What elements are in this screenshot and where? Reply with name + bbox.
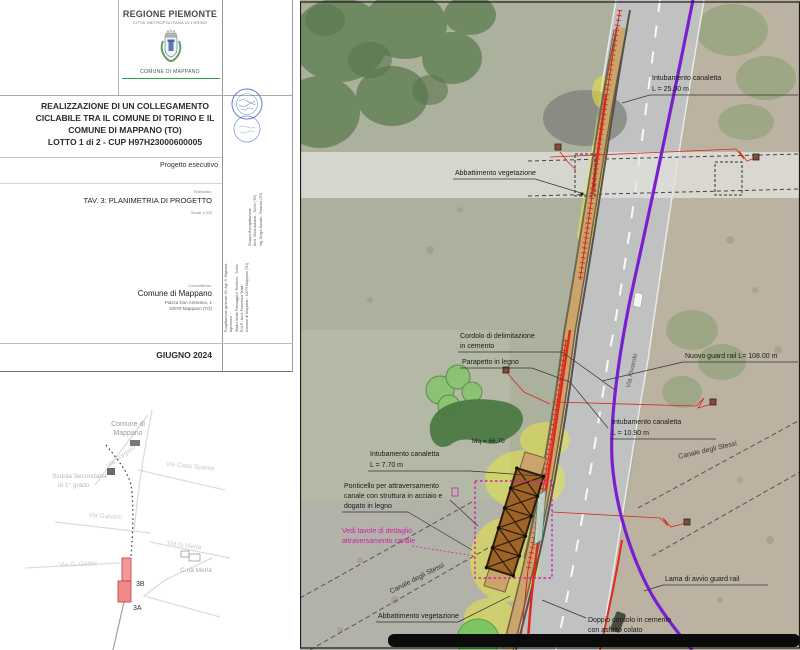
label-intubamento-25-2: L = 25.00 m: [652, 86, 689, 93]
label-intubamento-1090-2: L = 10.90 m: [612, 430, 649, 437]
minimap-label-3a: 3A: [133, 605, 142, 612]
minimap-label-via-la-merla: Via la Merla: [167, 540, 202, 552]
bottom-scrollbar[interactable]: [388, 634, 800, 647]
frame-line: [222, 0, 223, 372]
frame-line: [292, 0, 293, 372]
region-subtitle: CITTA' METROPOLITANA DI TORINO: [112, 20, 228, 25]
green-divider: [122, 78, 220, 79]
frame-line: [0, 183, 222, 184]
region-title: REGIONE PIEMONTE: [118, 9, 222, 19]
minimap-label-comune-1: Comune di: [111, 421, 145, 428]
project-title-line3: COMUNE DI MAPPANO (TO): [28, 125, 222, 135]
overpass-band: [300, 152, 800, 198]
label-lama: Lama di avvio guard rail: [665, 576, 740, 583]
label-intubamento-1090-1: Intubamento canaletta: [612, 419, 681, 426]
location-minimap: Comune di Mappano Scuola Secondaria di 1…: [0, 400, 240, 650]
project-title-line1: REALIZZAZIONE DI UN COLLEGAMENTO: [28, 101, 222, 111]
elaborato-label: Elaborato:: [80, 189, 212, 194]
label-abbattimento-top: Abbattimento vegetazione: [455, 170, 536, 177]
label-doppio-1: Doppio cordolo in cemento: [588, 617, 671, 624]
minimap-label-via-galvani: Via Galvani: [88, 512, 122, 521]
label-ponticello-1: Ponticello per attraversamento: [344, 483, 439, 490]
label-parapetto: Parapetto in legno: [462, 359, 519, 366]
client-address-2: 10079 Mappano (TO): [60, 306, 212, 311]
minimap-label-via-borgaro: Via Borgaro: [105, 444, 137, 470]
label-cordolo-1: Cordolo di delimitazione: [460, 333, 535, 340]
minimap-label-cna-merla: C.na Merla: [180, 567, 212, 574]
label-intubamento-770-1: Intubamento canaletta: [370, 451, 439, 458]
client-address-1: Piazza Don Amerano, 1: [60, 300, 212, 305]
label-abbattimento-bottom: Abbattimento vegetazione: [378, 613, 459, 620]
date-label: GIUGNO 2024: [60, 350, 212, 360]
client-name: Comune di Mappano: [60, 289, 212, 298]
scale-label: Scala 1:200: [80, 210, 212, 215]
minimap-intervention-segments: [118, 558, 131, 602]
stamp-icon: [226, 86, 268, 144]
label-doppio-2: con asfalto colato: [588, 627, 643, 634]
drawing-sheet: { "header": { "region": "REGIONE PIEMONT…: [0, 0, 800, 650]
label-vedi-1: Vedi tavole di dettaglio: [342, 528, 412, 535]
project-title-line4: LOTTO 1 di 2 - CUP H97H23000600005: [28, 137, 222, 147]
minimap-label-scuola-1: Scuola Secondaria: [52, 473, 107, 480]
coat-of-arms-icon: [157, 27, 185, 69]
elaborato-value: TAV. 3: PLANIMETRIA DI PROGETTO: [20, 196, 212, 205]
label-intubamento-25-1: Intubamento canaletta: [652, 75, 721, 82]
leader-dot: [580, 192, 583, 195]
site-plan: Intubamento canaletta L = 25.00 m Abbatt…: [300, 0, 800, 650]
general-designer-block: Progettazione generale: Dr. Agr. S. Mign…: [224, 260, 250, 332]
minimap-label-via-case-sparse: Via Case Sparse: [166, 460, 216, 472]
frame-line: [0, 157, 222, 158]
minimap-labels: Comune di Mappano Scuola Secondaria di 1…: [52, 421, 215, 612]
frame-line: [0, 371, 293, 372]
label-mq: Mq = 66,70: [472, 438, 505, 445]
label-guardrail: Nuovo guard rail L= 108.00 m: [685, 353, 778, 360]
client-label: Committente:: [60, 283, 212, 288]
project-title-line2: CICLABILE TRA IL COMUNE DI TORINO E IL: [28, 113, 222, 123]
minimap-label-via-galilei: Via G. Galilei: [59, 560, 97, 568]
frame-line: [0, 343, 293, 344]
design-team-block: Gruppo di progettazione: Arch. Silvia Ad…: [248, 188, 264, 246]
comune-title: COMUNE DI MAPPANO: [118, 69, 222, 75]
label-intubamento-770-2: L = 7.70 m: [370, 462, 403, 469]
minimap-label-comune-2: Mappano: [113, 430, 142, 437]
minimap-label-scuola-2: di 1° grado: [58, 481, 90, 489]
label-ponticello-3: dogato in legno: [344, 503, 392, 510]
label-ponticello-2: canale con struttura in acciaio e: [344, 493, 443, 500]
phase-label: Progetto esecutivo: [100, 162, 218, 169]
label-vedi-2: attraversamento canale: [342, 538, 415, 545]
minimap-cascina-icon: [181, 551, 200, 561]
title-block: REGIONE PIEMONTE CITTA' METROPOLITANA DI…: [0, 0, 300, 650]
minimap-road: [113, 602, 124, 650]
minimap-label-3b: 3B: [136, 581, 145, 588]
label-cordolo-2: in cemento: [460, 343, 494, 350]
